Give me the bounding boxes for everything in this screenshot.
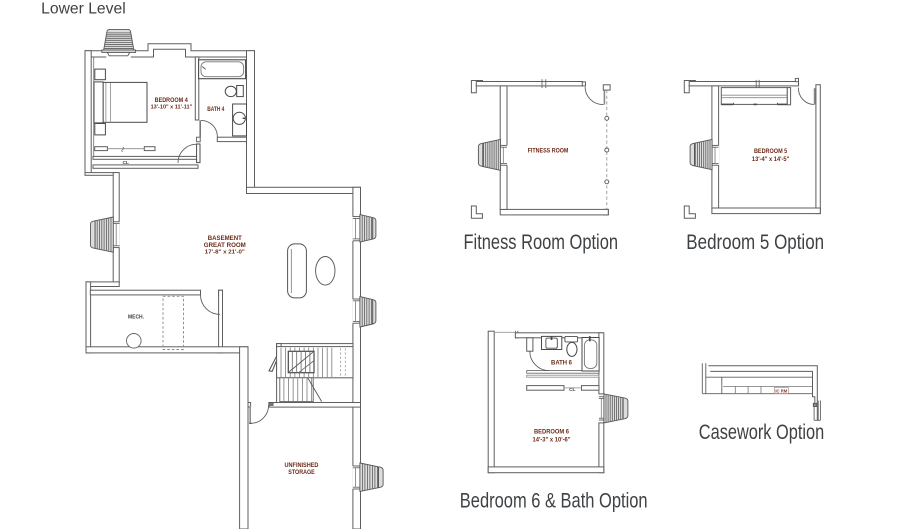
svg-text:Bedroom 5 Option: Bedroom 5 Option bbox=[686, 231, 824, 254]
svg-text:14'-3" x 10'-6": 14'-3" x 10'-6" bbox=[533, 437, 571, 443]
svg-text:Lower Level: Lower Level bbox=[41, 1, 126, 18]
svg-text:IC RM: IC RM bbox=[775, 388, 787, 393]
svg-text:CL: CL bbox=[122, 160, 128, 166]
svg-text:BATH 6: BATH 6 bbox=[551, 360, 572, 367]
svg-text:17'-8" x 21'-0": 17'-8" x 21'-0" bbox=[205, 250, 245, 256]
svg-text:Casework Option: Casework Option bbox=[699, 421, 824, 444]
svg-text:BEDROOM 5: BEDROOM 5 bbox=[754, 148, 788, 155]
svg-text:FITNESS ROOM: FITNESS ROOM bbox=[528, 148, 569, 155]
svg-text:MECH.: MECH. bbox=[128, 314, 144, 320]
svg-text:UNFINISHED: UNFINISHED bbox=[285, 462, 319, 469]
svg-text:BEDROOM 4: BEDROOM 4 bbox=[155, 97, 189, 104]
svg-text:13'-10" x 11'-11": 13'-10" x 11'-11" bbox=[151, 105, 193, 111]
svg-text:BEDROOM 6: BEDROOM 6 bbox=[534, 428, 569, 435]
svg-text:BATH 4: BATH 4 bbox=[207, 107, 225, 113]
svg-text:13'-4" x 14'-5": 13'-4" x 14'-5" bbox=[752, 157, 790, 163]
svg-text:GREAT ROOM: GREAT ROOM bbox=[204, 242, 246, 249]
svg-text:BASEMENT: BASEMENT bbox=[208, 235, 242, 242]
svg-text:Bedroom 6 & Bath Option: Bedroom 6 & Bath Option bbox=[460, 489, 648, 512]
svg-text:STORAGE: STORAGE bbox=[288, 469, 315, 476]
svg-text:CL: CL bbox=[569, 387, 575, 393]
svg-text:Fitness Room Option: Fitness Room Option bbox=[464, 231, 619, 254]
